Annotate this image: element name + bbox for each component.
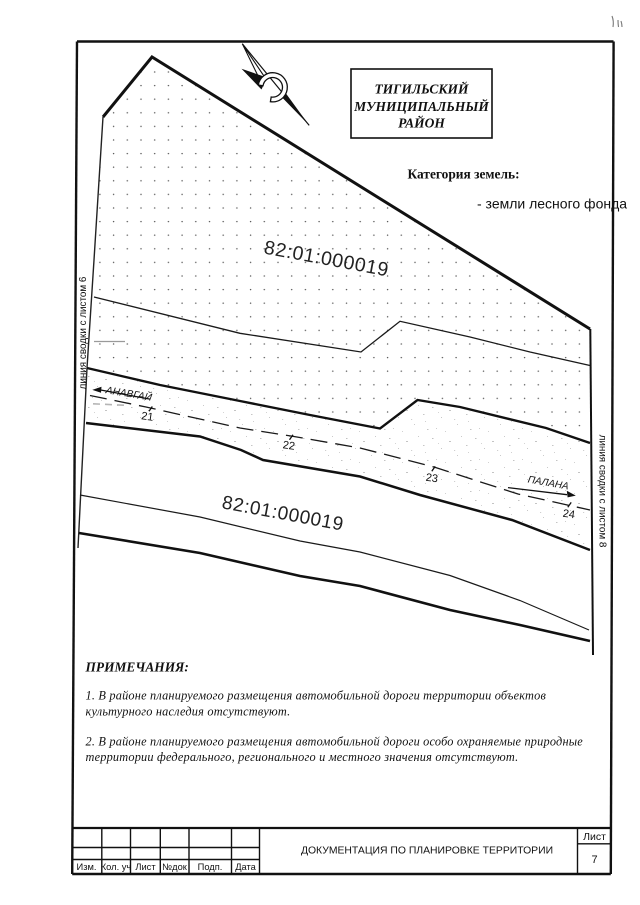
svg-text:ДОКУМЕНТАЦИЯ ПО ПЛАНИРОВКЕ ТЕР: ДОКУМЕНТАЦИЯ ПО ПЛАНИРОВКЕ ТЕРРИТОРИИ <box>301 846 553 857</box>
svg-text:21: 21 <box>140 410 154 424</box>
svg-text:82:01:000019: 82:01:000019 <box>220 492 345 535</box>
svg-text:ПРИМЕЧАНИЯ:: ПРИМЕЧАНИЯ: <box>85 660 189 675</box>
svg-text:линия сводки с листом 6: линия сводки с листом 6 <box>78 276 89 389</box>
svg-text:Категория земель:: Категория земель: <box>408 167 520 182</box>
svg-text:2. В районе планируемого разме: 2. В районе планируемого размещения авто… <box>86 735 584 749</box>
svg-text:РАЙОН: РАЙОН <box>398 116 445 131</box>
svg-text:22: 22 <box>282 439 296 453</box>
svg-text:24: 24 <box>562 508 576 522</box>
svg-text:ТИГИЛЬСКИЙ: ТИГИЛЬСКИЙ <box>374 82 469 97</box>
svg-text:Дата: Дата <box>235 862 256 872</box>
svg-text:№док: №док <box>162 862 188 872</box>
svg-text:Подп.: Подп. <box>198 862 223 872</box>
svg-text:- земли лесного фонда: - земли лесного фонда <box>477 196 627 212</box>
svg-text:Кол. уч: Кол. уч <box>101 862 132 872</box>
svg-text:МУНИЦИПАЛЬНЫЙ: МУНИЦИПАЛЬНЫЙ <box>353 99 489 114</box>
svg-text:23: 23 <box>425 472 439 486</box>
svg-text:территории федерального, регио: территории федерального, регионального и… <box>86 750 519 764</box>
svg-text:7: 7 <box>591 854 597 866</box>
svg-text:1. В районе планируемого разме: 1. В районе планируемого размещения авто… <box>86 689 547 703</box>
svg-text:линия сводки с листом 8: линия сводки с листом 8 <box>597 435 608 548</box>
svg-text:Лист: Лист <box>583 831 606 843</box>
svg-text:Лист: Лист <box>135 862 156 872</box>
svg-text:Изм.: Изм. <box>77 862 97 872</box>
svg-text:культурного наследия отсутству: культурного наследия отсутствуют. <box>86 705 291 719</box>
